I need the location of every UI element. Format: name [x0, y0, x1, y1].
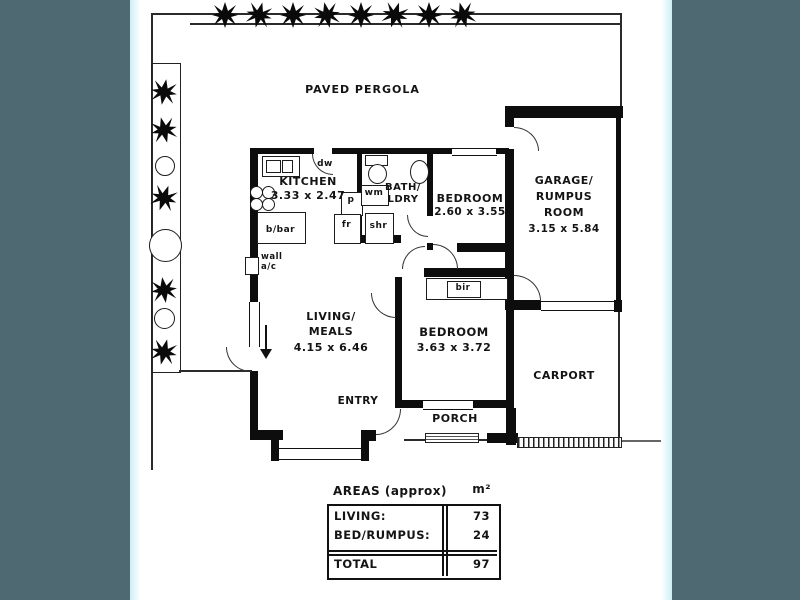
- carport-label: CARPORT: [527, 370, 601, 382]
- table-row-label: BED/RUMPUS:: [334, 529, 444, 541]
- wall: [395, 277, 402, 408]
- robe-label: bir: [447, 284, 479, 293]
- pergola-label: PAVED PERGOLA: [295, 84, 430, 96]
- bedroom1-dims: 2.60 x 3.55: [432, 207, 508, 218]
- wall: [424, 268, 509, 277]
- wall: [616, 118, 621, 302]
- door-arc: [514, 127, 539, 151]
- garage-dims: 3.15 x 5.84: [525, 224, 603, 235]
- wall: [271, 440, 279, 461]
- wall: [487, 433, 518, 443]
- dw-label: dw: [315, 160, 335, 169]
- table-divider: [446, 504, 448, 576]
- sink-bowl: [282, 160, 293, 173]
- table-separator: [327, 554, 497, 556]
- left-panel-fade: [130, 0, 141, 600]
- door-arc: [402, 246, 425, 269]
- bush-icon: [149, 77, 179, 107]
- floor-plan-canvas: PAVED PERGOLA KITCHEN 3.33 x 2.47 BATH/ …: [0, 0, 800, 600]
- window: [249, 302, 260, 347]
- living-label: MEALS: [297, 326, 365, 338]
- door-arc: [407, 215, 428, 237]
- wall: [505, 118, 514, 127]
- entry-label: ENTRY: [333, 396, 383, 407]
- table-row-value: 24: [450, 529, 490, 541]
- wall: [457, 243, 509, 252]
- garage-label: RUMPUS: [527, 191, 601, 203]
- door-arc: [371, 293, 396, 318]
- right-side-panel: [672, 0, 800, 600]
- bush-icon: [312, 0, 343, 30]
- garage-label: ROOM: [527, 207, 601, 219]
- wall: [361, 440, 369, 461]
- left-side-panel: [0, 0, 130, 600]
- boundary-line: [620, 13, 622, 108]
- pantry-label: p: [344, 196, 358, 205]
- bush-icon: [416, 2, 442, 28]
- bath-label: BATH/: [381, 183, 425, 194]
- areas-table-unit: m²: [455, 483, 491, 496]
- kitchen-dims: 3.33 x 2.47: [266, 190, 350, 202]
- bush-icon: [379, 0, 412, 31]
- porch-label: PORCH: [428, 413, 482, 425]
- right-panel-fade: [661, 0, 672, 600]
- toilet-bowl: [368, 164, 387, 184]
- living-dims: 4.15 x 6.46: [291, 342, 371, 354]
- fridge-label: fr: [334, 221, 359, 230]
- wall: [250, 148, 314, 154]
- wall: [250, 274, 258, 302]
- basin: [410, 160, 429, 184]
- sink-bowl: [266, 160, 281, 173]
- table-row-value: 73: [450, 510, 490, 522]
- washing-machine-label: wm: [361, 189, 387, 198]
- door-arc: [226, 347, 251, 372]
- wall: [250, 430, 283, 440]
- bay-window: [279, 448, 361, 460]
- bush-icon: [348, 2, 374, 28]
- tree-icon: [149, 229, 182, 262]
- bedroom2-dims: 3.63 x 3.72: [413, 342, 495, 354]
- wall: [402, 400, 423, 408]
- table-total-label: TOTAL: [334, 558, 438, 570]
- porch-step: [425, 433, 479, 443]
- shrub-icon: [155, 156, 175, 176]
- living-label: LIVING/: [297, 311, 365, 323]
- door-arc: [433, 244, 458, 269]
- driveway-strip: [517, 437, 622, 448]
- bedroom1-label: BEDROOM: [434, 193, 506, 205]
- bush-icon: [212, 2, 238, 28]
- window: [452, 148, 497, 156]
- areas-table-title: AREAS (approx): [333, 485, 453, 498]
- table-row-label: LIVING:: [334, 510, 438, 522]
- door-arc: [514, 275, 541, 301]
- wall-ac-label: a/c: [261, 263, 285, 272]
- wall: [361, 430, 376, 441]
- breakfast-bar-label: b/bar: [257, 226, 304, 235]
- bedroom2-label: BEDROOM: [417, 326, 491, 338]
- bush-icon: [243, 0, 275, 31]
- shower-label: shr: [365, 222, 392, 231]
- direction-arrow-head: [260, 349, 272, 359]
- bush-icon: [447, 0, 479, 31]
- carport-edge-line: [618, 302, 620, 444]
- bush-icon: [149, 275, 178, 304]
- carport-beam: [541, 301, 616, 311]
- bath-label: LDRY: [381, 195, 425, 206]
- bush-icon: [280, 2, 306, 28]
- wall: [250, 371, 258, 432]
- wall: [614, 300, 622, 312]
- kitchen-label: KITCHEN: [272, 176, 344, 188]
- table-separator: [327, 550, 497, 552]
- wall-ac-label: wall: [261, 253, 285, 262]
- wall: [473, 400, 506, 408]
- shrub-icon: [154, 308, 175, 329]
- garage-label: GARAGE/: [527, 175, 601, 187]
- window: [423, 400, 473, 410]
- wall: [332, 148, 454, 154]
- table-total-value: 97: [450, 558, 490, 570]
- direction-arrow: [265, 325, 267, 351]
- wall-ac-unit: [245, 257, 259, 275]
- door-arc: [376, 409, 401, 435]
- wall: [505, 106, 623, 118]
